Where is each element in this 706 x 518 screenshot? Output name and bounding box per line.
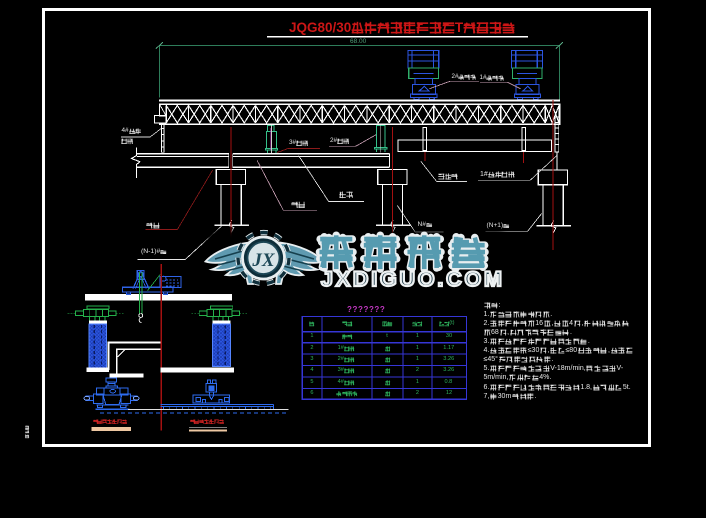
svg-text:JX: JX: [251, 250, 276, 271]
